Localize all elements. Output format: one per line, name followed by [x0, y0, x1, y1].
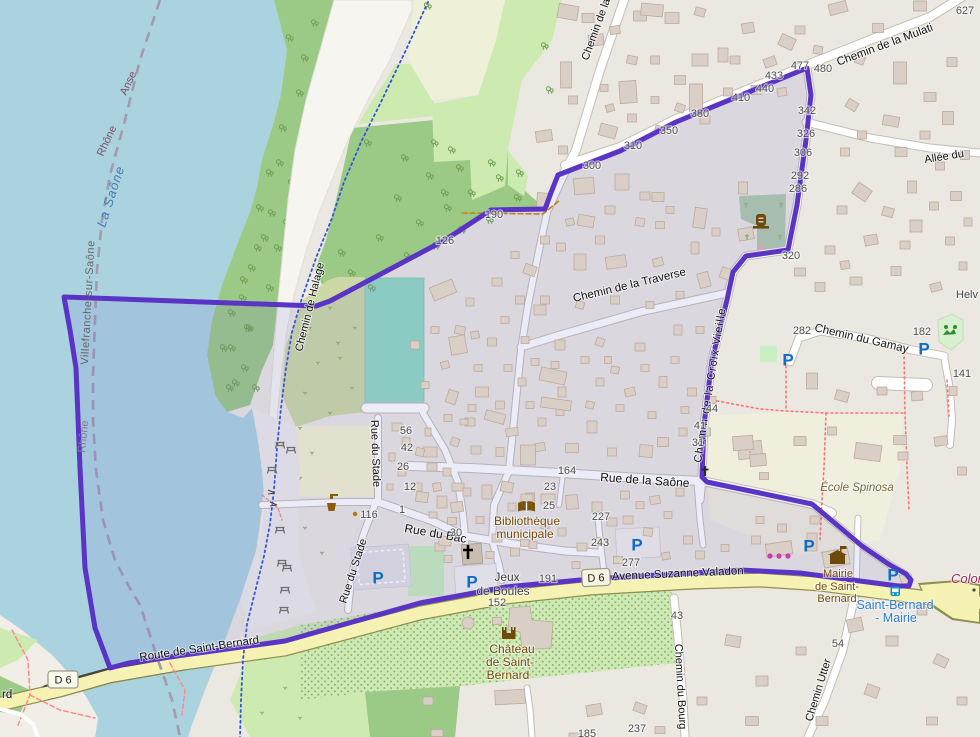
svg-text:Bernard: Bernard: [487, 668, 530, 682]
svg-text:237: 237: [628, 723, 646, 735]
svg-text:350: 350: [660, 125, 678, 137]
svg-text:P: P: [887, 566, 898, 585]
svg-text:141: 141: [953, 368, 971, 380]
svg-text:300: 300: [583, 160, 601, 172]
svg-text:municipale: municipale: [496, 527, 554, 541]
svg-text:26: 26: [397, 461, 409, 473]
svg-text:Helv: Helv: [956, 289, 979, 301]
svg-text:292: 292: [791, 170, 809, 182]
svg-text:277: 277: [622, 557, 640, 569]
svg-text:41: 41: [694, 420, 706, 432]
svg-text:de Boules: de Boules: [476, 584, 529, 598]
svg-text:Bibliothèque: Bibliothèque: [494, 514, 560, 528]
svg-text:Rue du Stade: Rue du Stade: [368, 420, 382, 488]
svg-text:44: 44: [706, 403, 718, 415]
svg-text:306: 306: [794, 147, 812, 159]
svg-text:de Saint-: de Saint-: [815, 581, 859, 593]
svg-text:627: 627: [956, 5, 974, 17]
svg-text:42: 42: [401, 442, 413, 454]
svg-text:182: 182: [913, 326, 931, 338]
svg-text:D 6: D 6: [587, 572, 605, 585]
svg-text:P: P: [782, 351, 793, 370]
svg-text:410: 410: [732, 92, 750, 104]
svg-text:École Spinosa: École Spinosa: [820, 481, 894, 494]
svg-text:Bernard: Bernard: [817, 593, 856, 605]
svg-text:326: 326: [797, 128, 815, 140]
svg-text:1: 1: [399, 504, 405, 516]
svg-text:243: 243: [591, 537, 609, 549]
svg-text:D 6: D 6: [54, 675, 71, 687]
svg-text:116: 116: [360, 509, 378, 521]
svg-text:30: 30: [450, 527, 462, 539]
svg-text:- Mairie: - Mairie: [875, 611, 917, 625]
svg-text:380: 380: [691, 108, 709, 120]
svg-text:342: 342: [798, 105, 816, 117]
svg-text:rd: rd: [2, 689, 12, 701]
svg-text:de Saint-: de Saint-: [486, 655, 534, 669]
svg-text:23: 23: [544, 481, 556, 493]
svg-text:Château: Château: [489, 642, 534, 656]
svg-text:Saint-Bernard: Saint-Bernard: [856, 598, 933, 612]
svg-text:P: P: [631, 536, 642, 555]
svg-text:12: 12: [404, 481, 416, 493]
svg-text:54: 54: [832, 638, 844, 650]
svg-text:440: 440: [756, 83, 774, 95]
svg-text:320: 320: [782, 250, 800, 262]
svg-text:185: 185: [578, 728, 596, 737]
svg-text:Colom: Colom: [951, 571, 980, 586]
svg-text:286: 286: [789, 183, 807, 195]
svg-text:P: P: [918, 340, 929, 359]
svg-text:282: 282: [793, 325, 811, 337]
svg-text:Mairie: Mairie: [823, 568, 853, 580]
svg-text:480: 480: [814, 63, 832, 75]
svg-text:477: 477: [791, 60, 809, 72]
svg-text:25: 25: [543, 500, 555, 512]
svg-text:190: 190: [485, 209, 503, 221]
svg-text:31: 31: [692, 437, 704, 449]
svg-text:433: 433: [765, 70, 783, 82]
svg-text:152: 152: [488, 597, 506, 609]
svg-text:126: 126: [436, 235, 454, 247]
svg-text:43: 43: [671, 610, 683, 622]
svg-text:191: 191: [539, 573, 557, 585]
svg-text:164: 164: [558, 465, 576, 477]
svg-text:Jeux: Jeux: [494, 570, 519, 584]
svg-text:310: 310: [624, 140, 642, 152]
svg-text:56: 56: [400, 425, 412, 437]
svg-text:P: P: [803, 537, 814, 556]
svg-text:P: P: [372, 569, 383, 588]
svg-text:227: 227: [592, 511, 610, 523]
